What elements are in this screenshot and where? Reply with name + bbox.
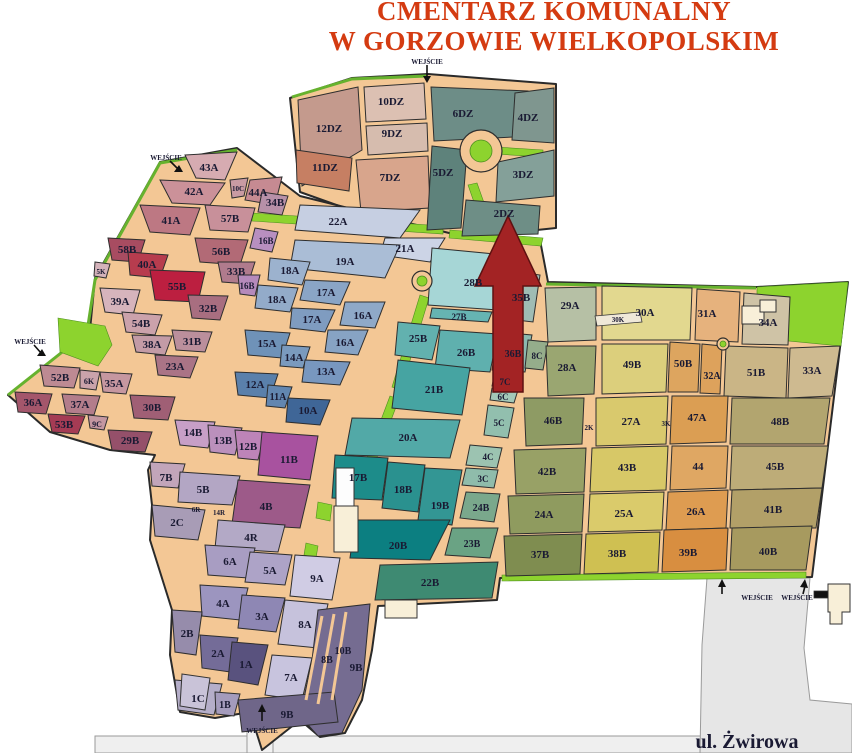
- section-label-2DZ: 2DZ: [494, 208, 515, 220]
- section-label-7A: 7A: [284, 672, 298, 684]
- section-label-15A: 15A: [258, 338, 277, 350]
- section-label-26B: 26B: [457, 347, 476, 359]
- section-label-23B: 23B: [464, 539, 481, 550]
- section-label-5B: 5B: [197, 484, 211, 496]
- section-label-14B: 14B: [184, 427, 203, 439]
- section-label-42B: 42B: [538, 466, 557, 478]
- section-label-8B: 8B: [321, 655, 333, 666]
- section-label-14A: 14A: [285, 352, 304, 364]
- section-label-2K: 2K: [585, 424, 595, 432]
- section-label-18A: 18A: [268, 294, 287, 306]
- administration-building: [385, 600, 417, 618]
- section-label-30B: 30B: [143, 402, 162, 414]
- entrance-south-label: WEJŚCIE: [246, 727, 278, 735]
- section-label-40A: 40A: [138, 259, 157, 271]
- section-label-26A: 26A: [687, 506, 706, 518]
- section-label-34A: 34A: [759, 317, 778, 329]
- section-label-44: 44: [693, 461, 705, 473]
- section-label-6K: 6K: [84, 377, 95, 386]
- section-label-7DZ: 7DZ: [380, 172, 401, 184]
- section-label-16A: 16A: [354, 310, 373, 322]
- section-label-4B: 4B: [260, 501, 274, 513]
- section-label-3A: 3A: [255, 611, 269, 623]
- section-label-38A: 38A: [143, 339, 162, 351]
- section-label-3DZ: 3DZ: [513, 169, 534, 181]
- section-label-18A: 18A: [281, 265, 300, 277]
- section-label-2B: 2B: [181, 628, 195, 640]
- section-label-17A: 17A: [303, 314, 322, 326]
- section-label-23A: 23A: [166, 361, 185, 373]
- section-label-7B: 7B: [160, 472, 174, 484]
- section-label-7C: 7C: [500, 377, 511, 387]
- section-label-44A: 44A: [249, 187, 268, 199]
- section-label-18B: 18B: [394, 484, 413, 496]
- section-label-5K: 5K: [97, 268, 107, 276]
- gatehouse-building: [828, 584, 850, 624]
- section-label-9C: 9C: [92, 420, 102, 429]
- section-label-41A: 41A: [162, 215, 181, 227]
- entrance-north-label: WEJŚCIE: [411, 58, 443, 66]
- section-7DZ[interactable]: [356, 156, 430, 212]
- section-label-31B: 31B: [183, 336, 202, 348]
- section-label-36B: 36B: [505, 349, 522, 360]
- section-label-49B: 49B: [623, 359, 642, 371]
- section-label-31A: 31A: [698, 308, 717, 320]
- green-area-8: [316, 502, 332, 521]
- section-label-12B: 12B: [239, 441, 258, 453]
- section-label-32B: 32B: [199, 303, 218, 315]
- section-label-42A: 42A: [185, 186, 204, 198]
- section-label-25A: 25A: [615, 508, 634, 520]
- section-label-10A: 10A: [299, 405, 318, 417]
- section-label-34B: 34B: [266, 197, 285, 209]
- section-label-20A: 20A: [399, 432, 418, 444]
- section-label-48B: 48B: [771, 416, 790, 428]
- section-label-37B: 37B: [531, 549, 550, 561]
- section-label-6DZ: 6DZ: [453, 108, 474, 120]
- roundabout-east-island: [720, 341, 726, 347]
- entrance-southeast-1-label: WEJŚCIE: [741, 594, 773, 602]
- entrance-west-arrow-line: [34, 345, 41, 353]
- section-label-22B: 22B: [421, 577, 440, 589]
- section-label-8C: 8C: [532, 351, 543, 361]
- section-label-8A: 8A: [298, 619, 312, 631]
- section-label-52B: 52B: [51, 372, 70, 384]
- chapel-building: [334, 506, 358, 552]
- section-label-19B: 19B: [431, 500, 450, 512]
- section-label-16B: 16B: [239, 281, 254, 291]
- section-label-35A: 35A: [105, 378, 124, 390]
- section-label-11DZ: 11DZ: [312, 162, 338, 174]
- section-label-54B: 54B: [132, 318, 151, 330]
- section-label-39B: 39B: [679, 547, 698, 559]
- section-label-47A: 47A: [688, 412, 707, 424]
- section-label-57B: 57B: [221, 213, 240, 225]
- section-label-32A: 32A: [703, 371, 721, 382]
- section-label-37A: 37A: [71, 399, 90, 411]
- section-29A[interactable]: [545, 287, 596, 342]
- section-label-19A: 19A: [336, 256, 355, 268]
- section-label-43A: 43A: [200, 162, 219, 174]
- section-label-22A: 22A: [329, 216, 348, 228]
- section-label-21A: 21A: [396, 243, 415, 255]
- section-label-51B: 51B: [747, 367, 766, 379]
- section-label-6C: 6C: [498, 392, 509, 402]
- section-label-12DZ: 12DZ: [316, 123, 342, 135]
- section-label-39A: 39A: [111, 296, 130, 308]
- section-label-14R: 14R: [213, 509, 226, 517]
- roundabout-main-island: [470, 140, 492, 162]
- section-label-6R: 6R: [192, 506, 202, 514]
- section-label-17A: 17A: [317, 287, 336, 299]
- section-label-53B: 53B: [55, 419, 74, 431]
- section-label-5A: 5A: [263, 565, 277, 577]
- section-label-13A: 13A: [317, 366, 336, 378]
- section-label-1C: 1C: [191, 693, 205, 705]
- section-label-13B: 13B: [214, 435, 233, 447]
- section-label-28A: 28A: [558, 362, 577, 374]
- section-label-10DZ: 10DZ: [378, 96, 404, 108]
- section-label-9A: 9A: [310, 573, 324, 585]
- roundabout-small-island: [417, 276, 427, 286]
- section-label-4DZ: 4DZ: [518, 112, 539, 124]
- section-label-10C: 10C: [232, 185, 244, 193]
- section-label-27B: 27B: [451, 312, 466, 322]
- section-label-3C: 3C: [478, 474, 489, 484]
- section-label-4A: 4A: [216, 598, 230, 610]
- building-34a-annex: [760, 300, 776, 312]
- street-name-label: ul. Żwirowa: [696, 729, 799, 753]
- section-label-16B: 16B: [258, 236, 273, 246]
- section-label-11A: 11A: [270, 392, 287, 403]
- section-label-20B: 20B: [389, 540, 408, 552]
- entrance-west-label: WEJŚCIE: [14, 338, 46, 346]
- section-label-27A: 27A: [622, 416, 641, 428]
- section-label-55B: 55B: [168, 281, 187, 293]
- section-label-45B: 45B: [766, 461, 785, 473]
- section-label-29B: 29B: [121, 435, 140, 447]
- section-label-9B: 9B: [350, 662, 364, 674]
- section-label-11B: 11B: [280, 454, 298, 466]
- section-label-5DZ: 5DZ: [433, 167, 454, 179]
- section-label-33B: 33B: [227, 266, 246, 278]
- entrance-southeast-2-label: WEJŚCIE: [781, 594, 813, 602]
- section-label-43B: 43B: [618, 462, 637, 474]
- section-label-35B: 35B: [512, 292, 531, 304]
- section-label-12A: 12A: [246, 379, 265, 391]
- entrance-northwest-label: WEJŚCIE: [150, 154, 182, 162]
- section-label-5C: 5C: [494, 418, 505, 428]
- section-label-17B: 17B: [349, 472, 368, 484]
- section-label-41B: 41B: [764, 504, 783, 516]
- section-label-21B: 21B: [425, 384, 444, 396]
- section-label-24B: 24B: [473, 503, 490, 514]
- section-label-56B: 56B: [212, 246, 231, 258]
- section-label-24A: 24A: [535, 509, 554, 521]
- section-label-2A: 2A: [211, 648, 225, 660]
- section-label-25B: 25B: [409, 333, 428, 345]
- section-label-4C: 4C: [483, 452, 494, 462]
- section-label-16A: 16A: [336, 337, 355, 349]
- label-30K: 30K: [612, 316, 625, 324]
- section-label-1B: 1B: [219, 700, 231, 711]
- section-label-28B: 28B: [464, 277, 483, 289]
- section-label-9B: 9B: [281, 709, 295, 721]
- section-32A[interactable]: [700, 344, 722, 394]
- section-label-33A: 33A: [803, 365, 822, 377]
- section-label-40B: 40B: [759, 546, 778, 558]
- section-label-4R: 4R: [244, 532, 259, 544]
- section-label-30A: 30A: [636, 307, 655, 319]
- cemetery-map: 30K12DZ10DZ9DZ11DZ7DZ6DZ4DZ5DZ3DZ2DZ43A4…: [0, 0, 852, 753]
- section-label-36A: 36A: [24, 397, 43, 409]
- section-label-50B: 50B: [674, 358, 693, 370]
- section-label-2C: 2C: [170, 517, 184, 529]
- section-label-58B: 58B: [118, 244, 137, 256]
- gate-symbol: [814, 591, 828, 598]
- cemetery-map-page: { "title":{"line1":"CMENTARZ KOMUNALNY",…: [0, 0, 852, 753]
- section-label-38B: 38B: [608, 548, 627, 560]
- section-label-9DZ: 9DZ: [382, 128, 403, 140]
- section-label-1A: 1A: [239, 659, 253, 671]
- section-label-29A: 29A: [561, 300, 580, 312]
- section-label-6A: 6A: [223, 556, 237, 568]
- section-label-10B: 10B: [335, 646, 352, 657]
- section-label-46B: 46B: [544, 415, 563, 427]
- section-label-3K: 3K: [662, 420, 672, 428]
